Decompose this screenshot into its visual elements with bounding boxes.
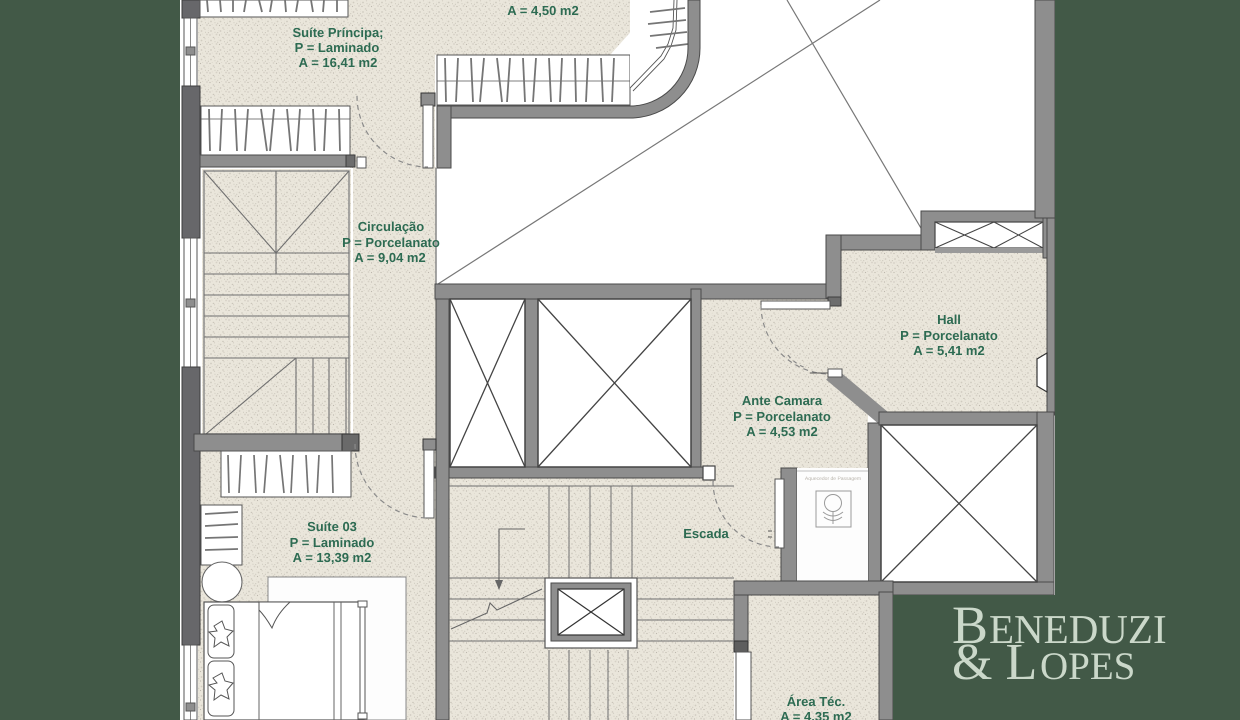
svg-text:Suíte 03: Suíte 03: [307, 519, 357, 534]
svg-text:A = 13,39 m2: A = 13,39 m2: [293, 550, 372, 565]
svg-text:Aquecedor de Passagem: Aquecedor de Passagem: [805, 476, 861, 482]
svg-text:Escada: Escada: [683, 526, 729, 541]
svg-text:A = 16,41 m2: A = 16,41 m2: [299, 55, 378, 70]
svg-text:Suíte Príncipa;: Suíte Príncipa;: [292, 25, 383, 40]
svg-text:A = 5,41 m2: A = 5,41 m2: [913, 343, 984, 358]
svg-text:P = Laminado: P = Laminado: [295, 40, 380, 55]
svg-text:P = Porcelanato: P = Porcelanato: [342, 235, 440, 250]
svg-text:A = 4,53 m2: A = 4,53 m2: [746, 424, 817, 439]
svg-text:A = 9,04 m2: A = 9,04 m2: [354, 250, 425, 265]
svg-text:A = 4,35 m2: A = 4,35 m2: [780, 709, 851, 720]
svg-text:& L: & L: [952, 634, 1037, 691]
svg-text:Área Téc.: Área Téc.: [787, 694, 846, 709]
svg-text:Circulação: Circulação: [358, 219, 425, 234]
svg-text:OPES: OPES: [1040, 645, 1135, 688]
svg-text:P = Porcelanato: P = Porcelanato: [900, 328, 998, 343]
svg-text:Ante Camara: Ante Camara: [742, 393, 823, 408]
svg-text:P = Laminado: P = Laminado: [290, 535, 375, 550]
svg-text:Hall: Hall: [937, 312, 961, 327]
svg-text:P = Porcelanato: P = Porcelanato: [733, 409, 831, 424]
svg-text:A = 4,50 m2: A = 4,50 m2: [507, 3, 578, 18]
